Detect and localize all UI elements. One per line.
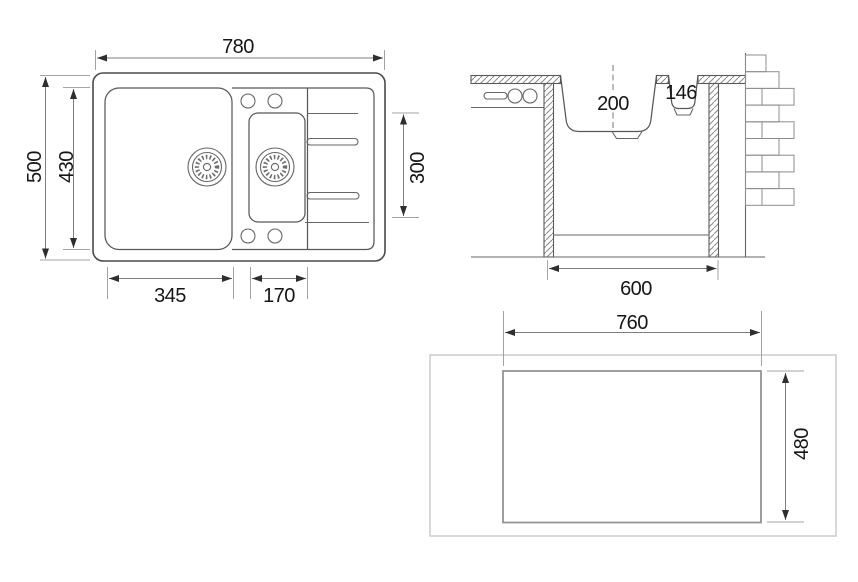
countertop-section: [471, 76, 746, 84]
drain-teeth: [197, 157, 217, 177]
sink-technical-drawing: 780 500 430 345 170: [0, 0, 858, 582]
cabinet-side-panel-left: [544, 84, 554, 258]
faucet-hole: [241, 229, 255, 243]
main-bowl-drain: [188, 148, 226, 186]
control-knob: [523, 89, 537, 103]
brick: [746, 55, 767, 72]
sink-outer-rim: [93, 73, 385, 261]
dim-label-480: 480: [791, 428, 813, 460]
drain-cap: [203, 163, 210, 170]
countertop-slab: [471, 76, 561, 84]
faucet-hole: [268, 229, 282, 243]
dim-label-430: 430: [56, 151, 78, 183]
dim-label-780: 780: [222, 36, 254, 58]
dim-label-500: 500: [24, 151, 46, 183]
dim-label-760: 760: [616, 312, 648, 334]
drainboard-ridges: [305, 114, 369, 223]
dim-label-600: 600: [620, 278, 652, 300]
drain-outer-ring: [256, 148, 294, 186]
dimension-inner-depth: 430: [56, 88, 90, 250]
dim-label-200: 200: [597, 93, 629, 115]
drain-outer-ring: [188, 148, 226, 186]
dimension-overall-width: 780: [96, 36, 385, 70]
dimension-small-bowl-width: 170: [251, 267, 308, 307]
worktop-outline: [430, 355, 836, 536]
top-view: 780 500 430 345 170: [24, 36, 429, 307]
brick: [746, 139, 780, 156]
countertop-slab: [698, 76, 746, 84]
brick-wall: [746, 53, 795, 257]
main-bowl: [105, 88, 232, 250]
brick: [746, 88, 795, 105]
brick: [746, 122, 795, 139]
control-knob: [508, 89, 522, 103]
dimension-cabinet-width: 600: [548, 260, 719, 300]
drain-teeth: [265, 157, 285, 177]
cutout-rectangle: [503, 371, 761, 523]
brick: [746, 155, 795, 172]
drainboard-ridge-bar: [307, 193, 359, 200]
brick: [746, 72, 780, 89]
dimension-cutout-depth: 480: [767, 371, 813, 522]
dim-label-300: 300: [407, 152, 429, 184]
faucet-hole: [241, 94, 255, 108]
brick: [746, 105, 780, 122]
cabinet-side-panel-right: [709, 84, 719, 258]
dim-label-146: 146: [665, 82, 697, 104]
dim-label-345: 345: [154, 285, 186, 307]
sink-inner-rim: [232, 88, 374, 250]
drawer-handle: [484, 93, 507, 100]
faucet-holes: [241, 94, 282, 243]
small-bowl-drain-fitting: [674, 109, 693, 116]
drawing-svg: 780 500 430 345 170: [0, 0, 858, 582]
drain-cap: [271, 163, 278, 170]
dimension-main-bowl-width: 345: [108, 267, 234, 307]
faucet-hole: [268, 94, 282, 108]
brick: [746, 189, 795, 206]
dimension-cutout-width: 760: [504, 311, 762, 366]
brick: [746, 172, 780, 189]
main-bowl-drain-fitting: [612, 132, 642, 139]
small-bowl: [249, 113, 305, 222]
drainboard-ridge-bar: [307, 139, 358, 146]
section-view: 200 146 600: [471, 53, 794, 300]
cutout-view: 760 480: [430, 311, 836, 536]
small-bowl-drain: [256, 148, 294, 186]
dimension-small-bowl-length: 300: [392, 113, 429, 218]
dim-label-170: 170: [263, 285, 295, 307]
